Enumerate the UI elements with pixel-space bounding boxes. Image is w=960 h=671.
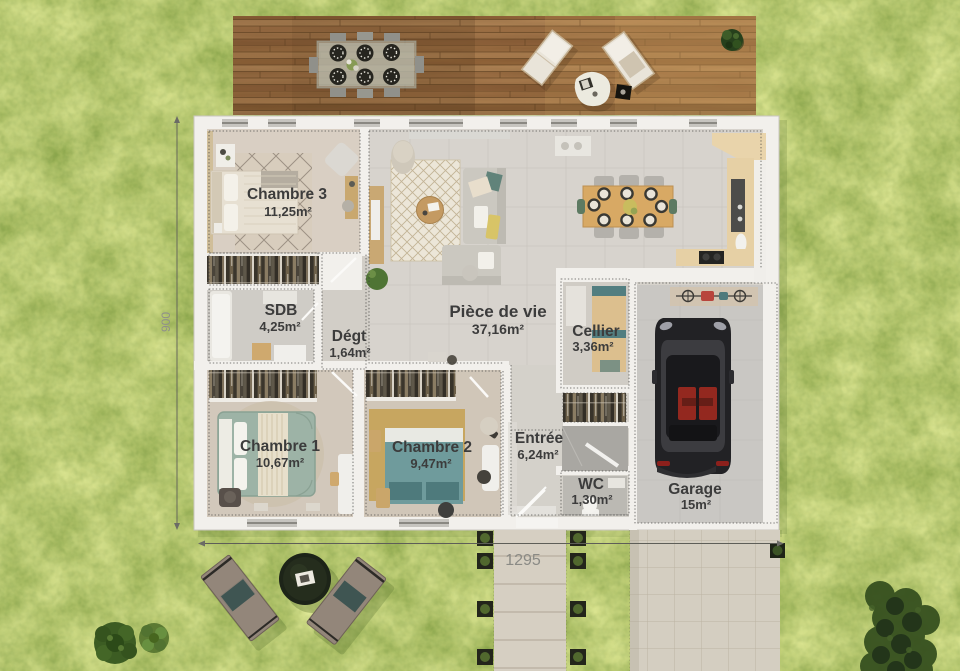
svg-text:Chambre 2: Chambre 2 — [392, 439, 472, 456]
svg-text:1295: 1295 — [505, 552, 541, 569]
svg-text:Chambre 1: Chambre 1 — [240, 438, 320, 455]
svg-text:3,36m²: 3,36m² — [572, 339, 614, 354]
svg-text:Garage: Garage — [668, 481, 722, 498]
svg-text:Chambre 3: Chambre 3 — [247, 186, 327, 203]
svg-text:4,25m²: 4,25m² — [259, 319, 301, 334]
svg-text:9,47m²: 9,47m² — [410, 456, 452, 471]
svg-text:Cellier: Cellier — [572, 323, 619, 340]
svg-text:15m²: 15m² — [681, 497, 712, 512]
svg-text:11,25m²: 11,25m² — [264, 204, 312, 219]
svg-text:Pièce de vie: Pièce de vie — [449, 302, 546, 321]
svg-text:37,16m²: 37,16m² — [472, 321, 524, 337]
svg-text:1,64m²: 1,64m² — [329, 345, 371, 360]
svg-text:SDB: SDB — [265, 302, 298, 319]
svg-text:1,30m²: 1,30m² — [571, 492, 613, 507]
svg-text:Dégt: Dégt — [332, 328, 366, 345]
svg-text:6,24m²: 6,24m² — [517, 447, 559, 462]
svg-text:WC: WC — [578, 476, 604, 493]
svg-text:Entrée: Entrée — [515, 430, 564, 447]
svg-text:900: 900 — [159, 312, 173, 332]
svg-text:10,67m²: 10,67m² — [256, 455, 305, 470]
